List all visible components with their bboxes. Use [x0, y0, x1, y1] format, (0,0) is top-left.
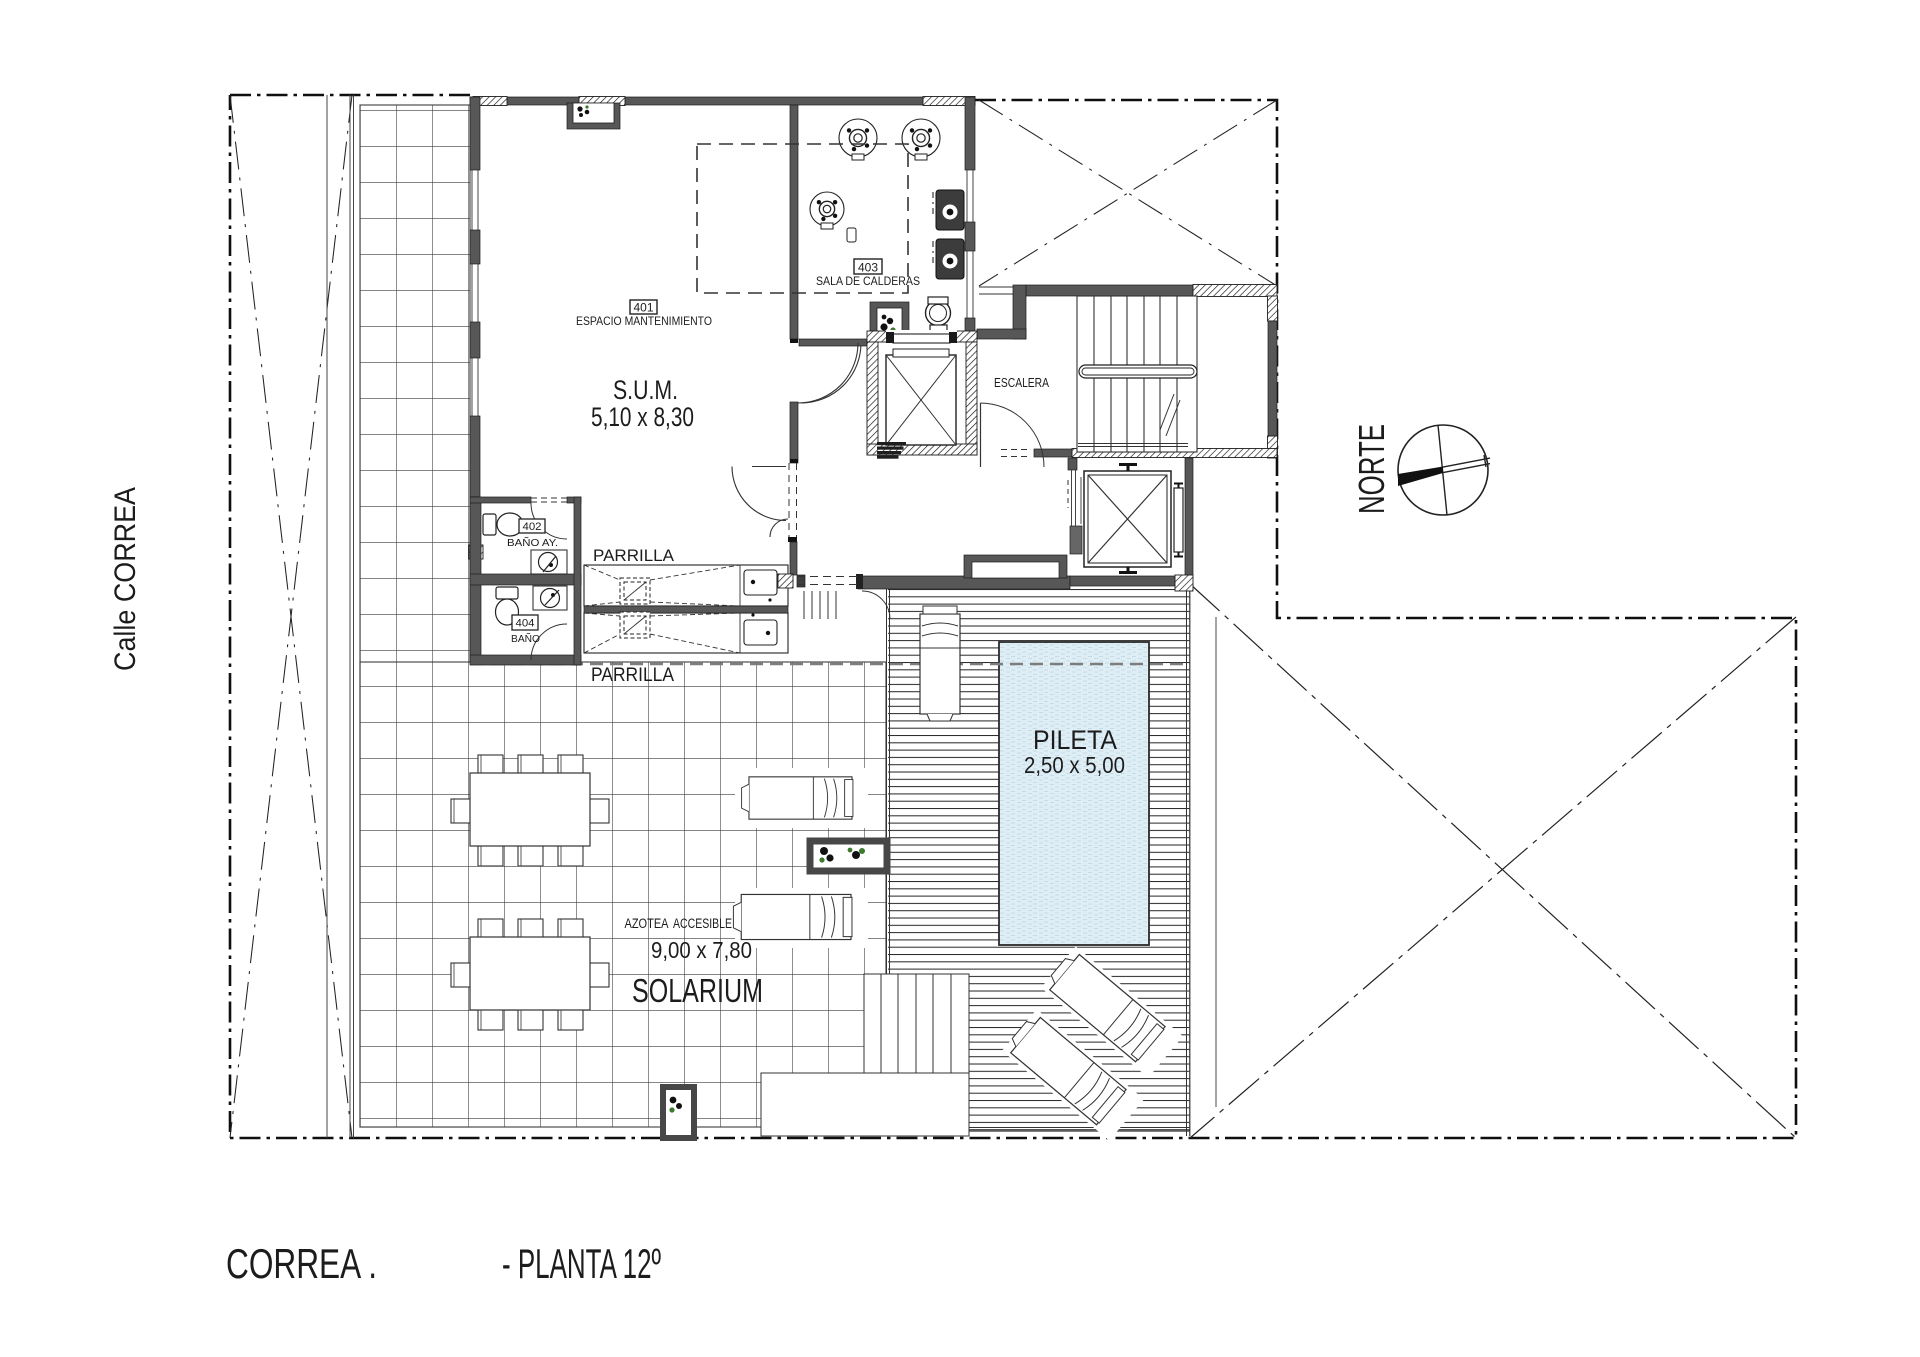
svg-text:CORREA .: CORREA . — [226, 1240, 377, 1287]
svg-text:BAÑO AY.: BAÑO AY. — [507, 536, 558, 549]
svg-text:ACCESIBLE: ACCESIBLE — [673, 916, 732, 931]
svg-text:403: 403 — [858, 263, 878, 275]
svg-text:2,50 x 5,00: 2,50 x 5,00 — [1024, 752, 1125, 778]
svg-text:NORTE: NORTE — [1351, 424, 1392, 514]
svg-text:5,10 x 8,30: 5,10 x 8,30 — [591, 402, 694, 432]
svg-text:401: 401 — [634, 303, 654, 315]
svg-text:402: 402 — [523, 521, 542, 533]
svg-text:S.U.M.: S.U.M. — [613, 375, 678, 405]
svg-text:Calle CORREA: Calle CORREA — [109, 487, 142, 671]
svg-text:SOLARIUM: SOLARIUM — [632, 972, 763, 1009]
svg-text:404: 404 — [516, 618, 535, 630]
svg-text:BAÑO: BAÑO — [511, 632, 540, 645]
svg-text:PARRILLA: PARRILLA — [593, 546, 675, 565]
svg-text:PARRILLA: PARRILLA — [591, 665, 674, 686]
svg-text:9,00 x 7,80: 9,00 x 7,80 — [651, 937, 752, 963]
svg-text:ESCALERA: ESCALERA — [994, 376, 1050, 390]
svg-text:PILETA: PILETA — [1033, 725, 1117, 755]
svg-text:AZOTEA: AZOTEA — [625, 916, 669, 931]
svg-text:- PLANTA 12º: - PLANTA 12º — [502, 1240, 661, 1287]
svg-text:SALA DE CALDERAS: SALA DE CALDERAS — [816, 276, 920, 288]
svg-text:ESPACIO MANTENIMIENTO: ESPACIO MANTENIMIENTO — [576, 316, 712, 328]
